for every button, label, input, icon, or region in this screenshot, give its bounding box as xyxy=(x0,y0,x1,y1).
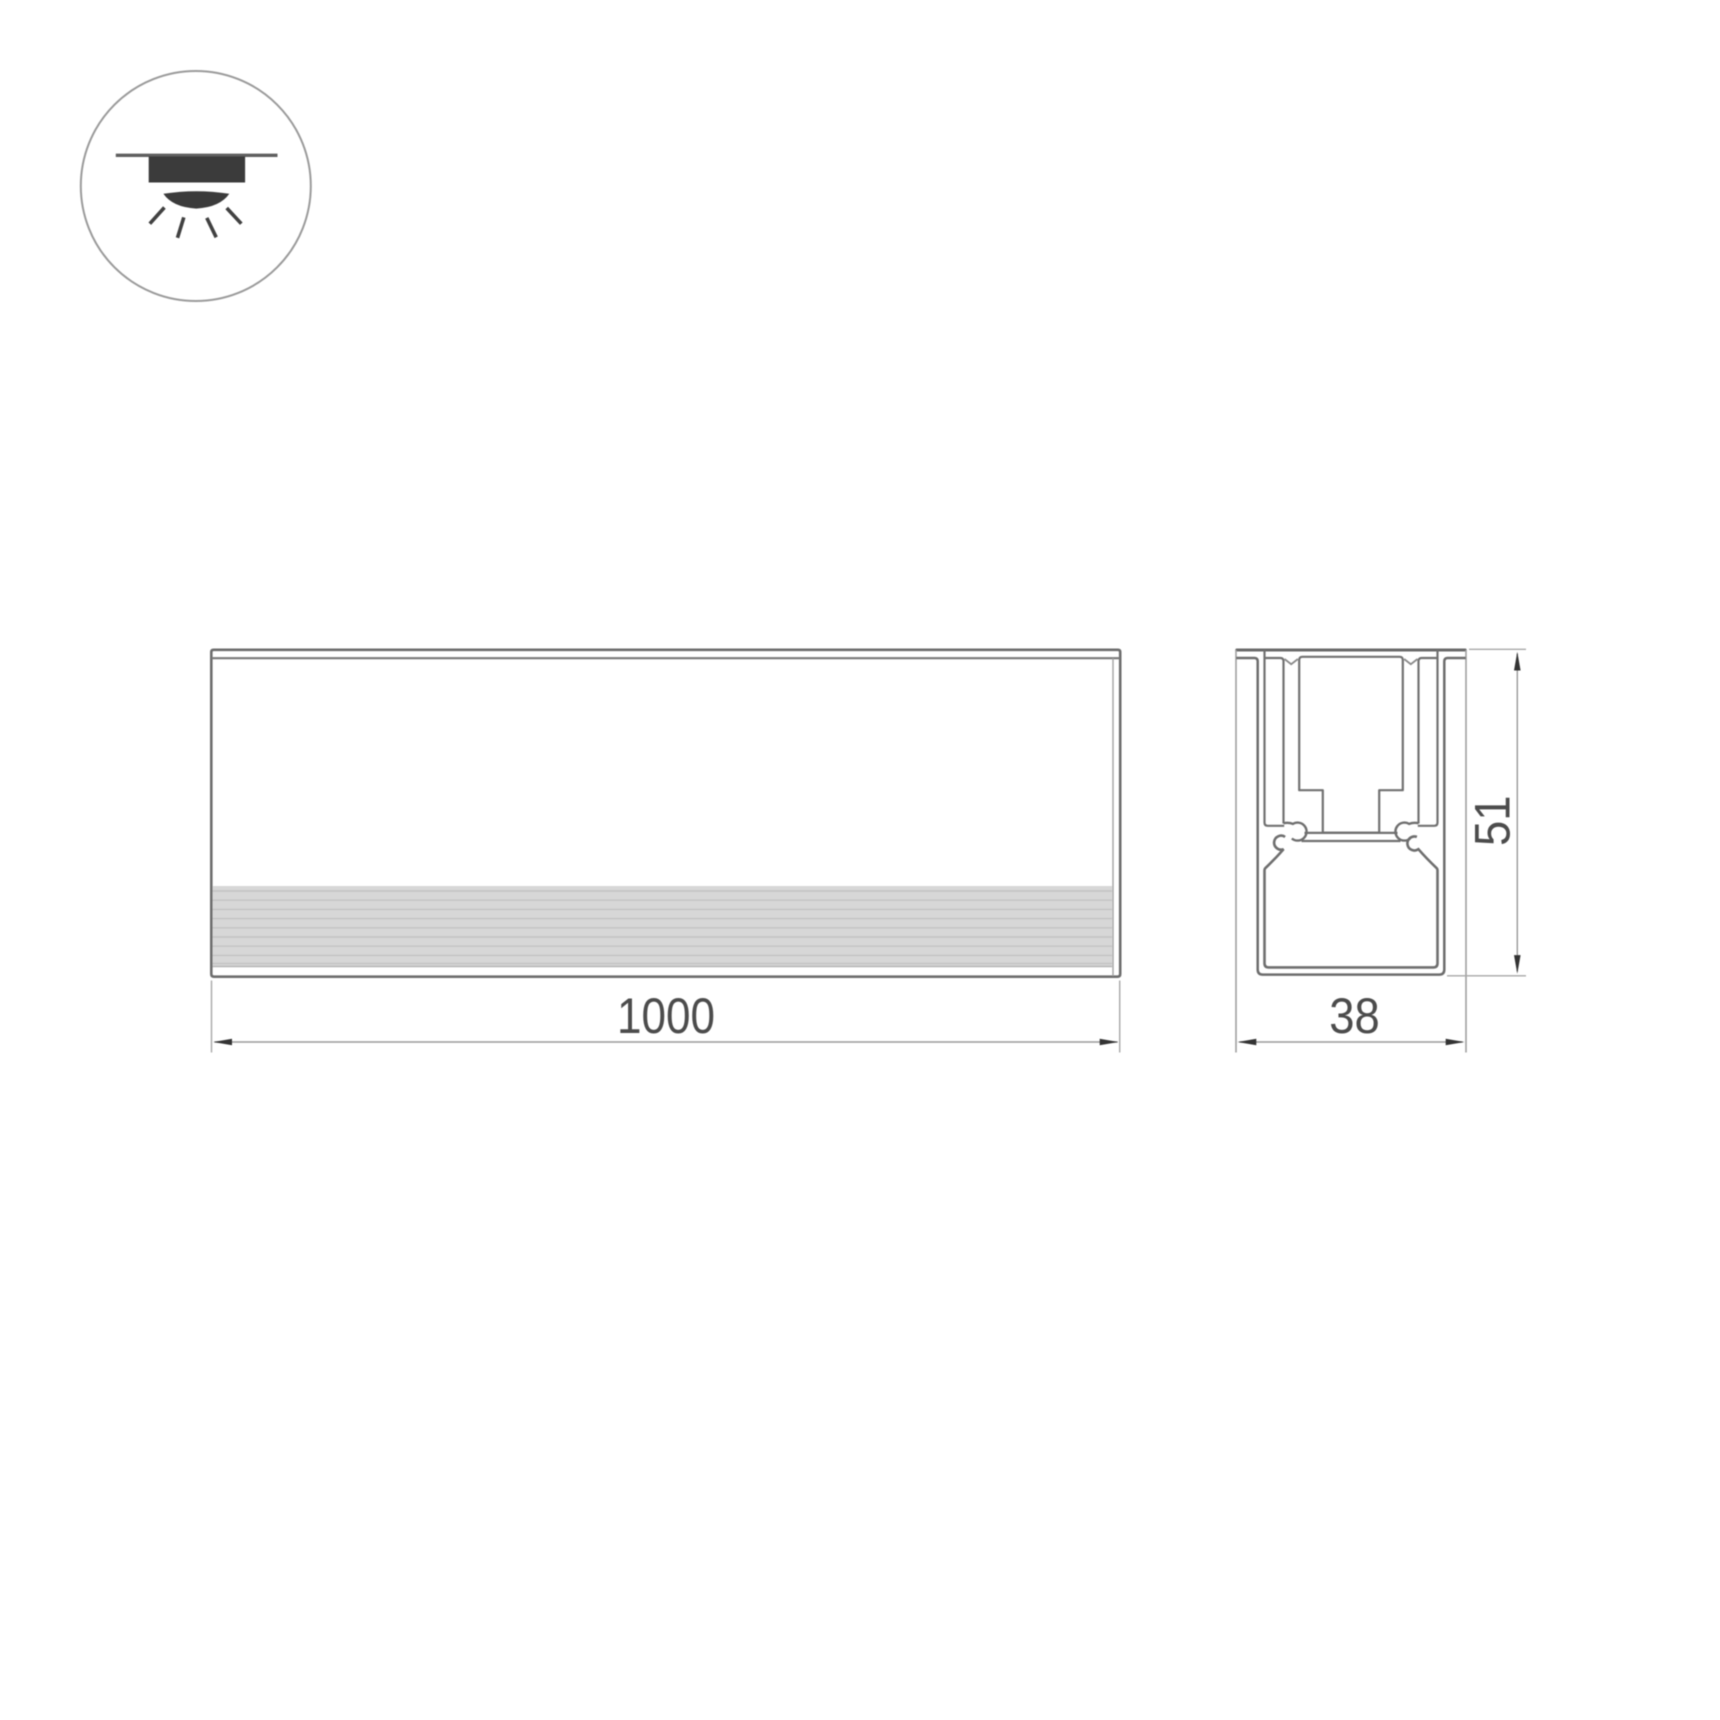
svg-text:51: 51 xyxy=(1464,796,1520,847)
svg-text:38: 38 xyxy=(1329,988,1380,1044)
svg-text:1000: 1000 xyxy=(617,988,715,1044)
